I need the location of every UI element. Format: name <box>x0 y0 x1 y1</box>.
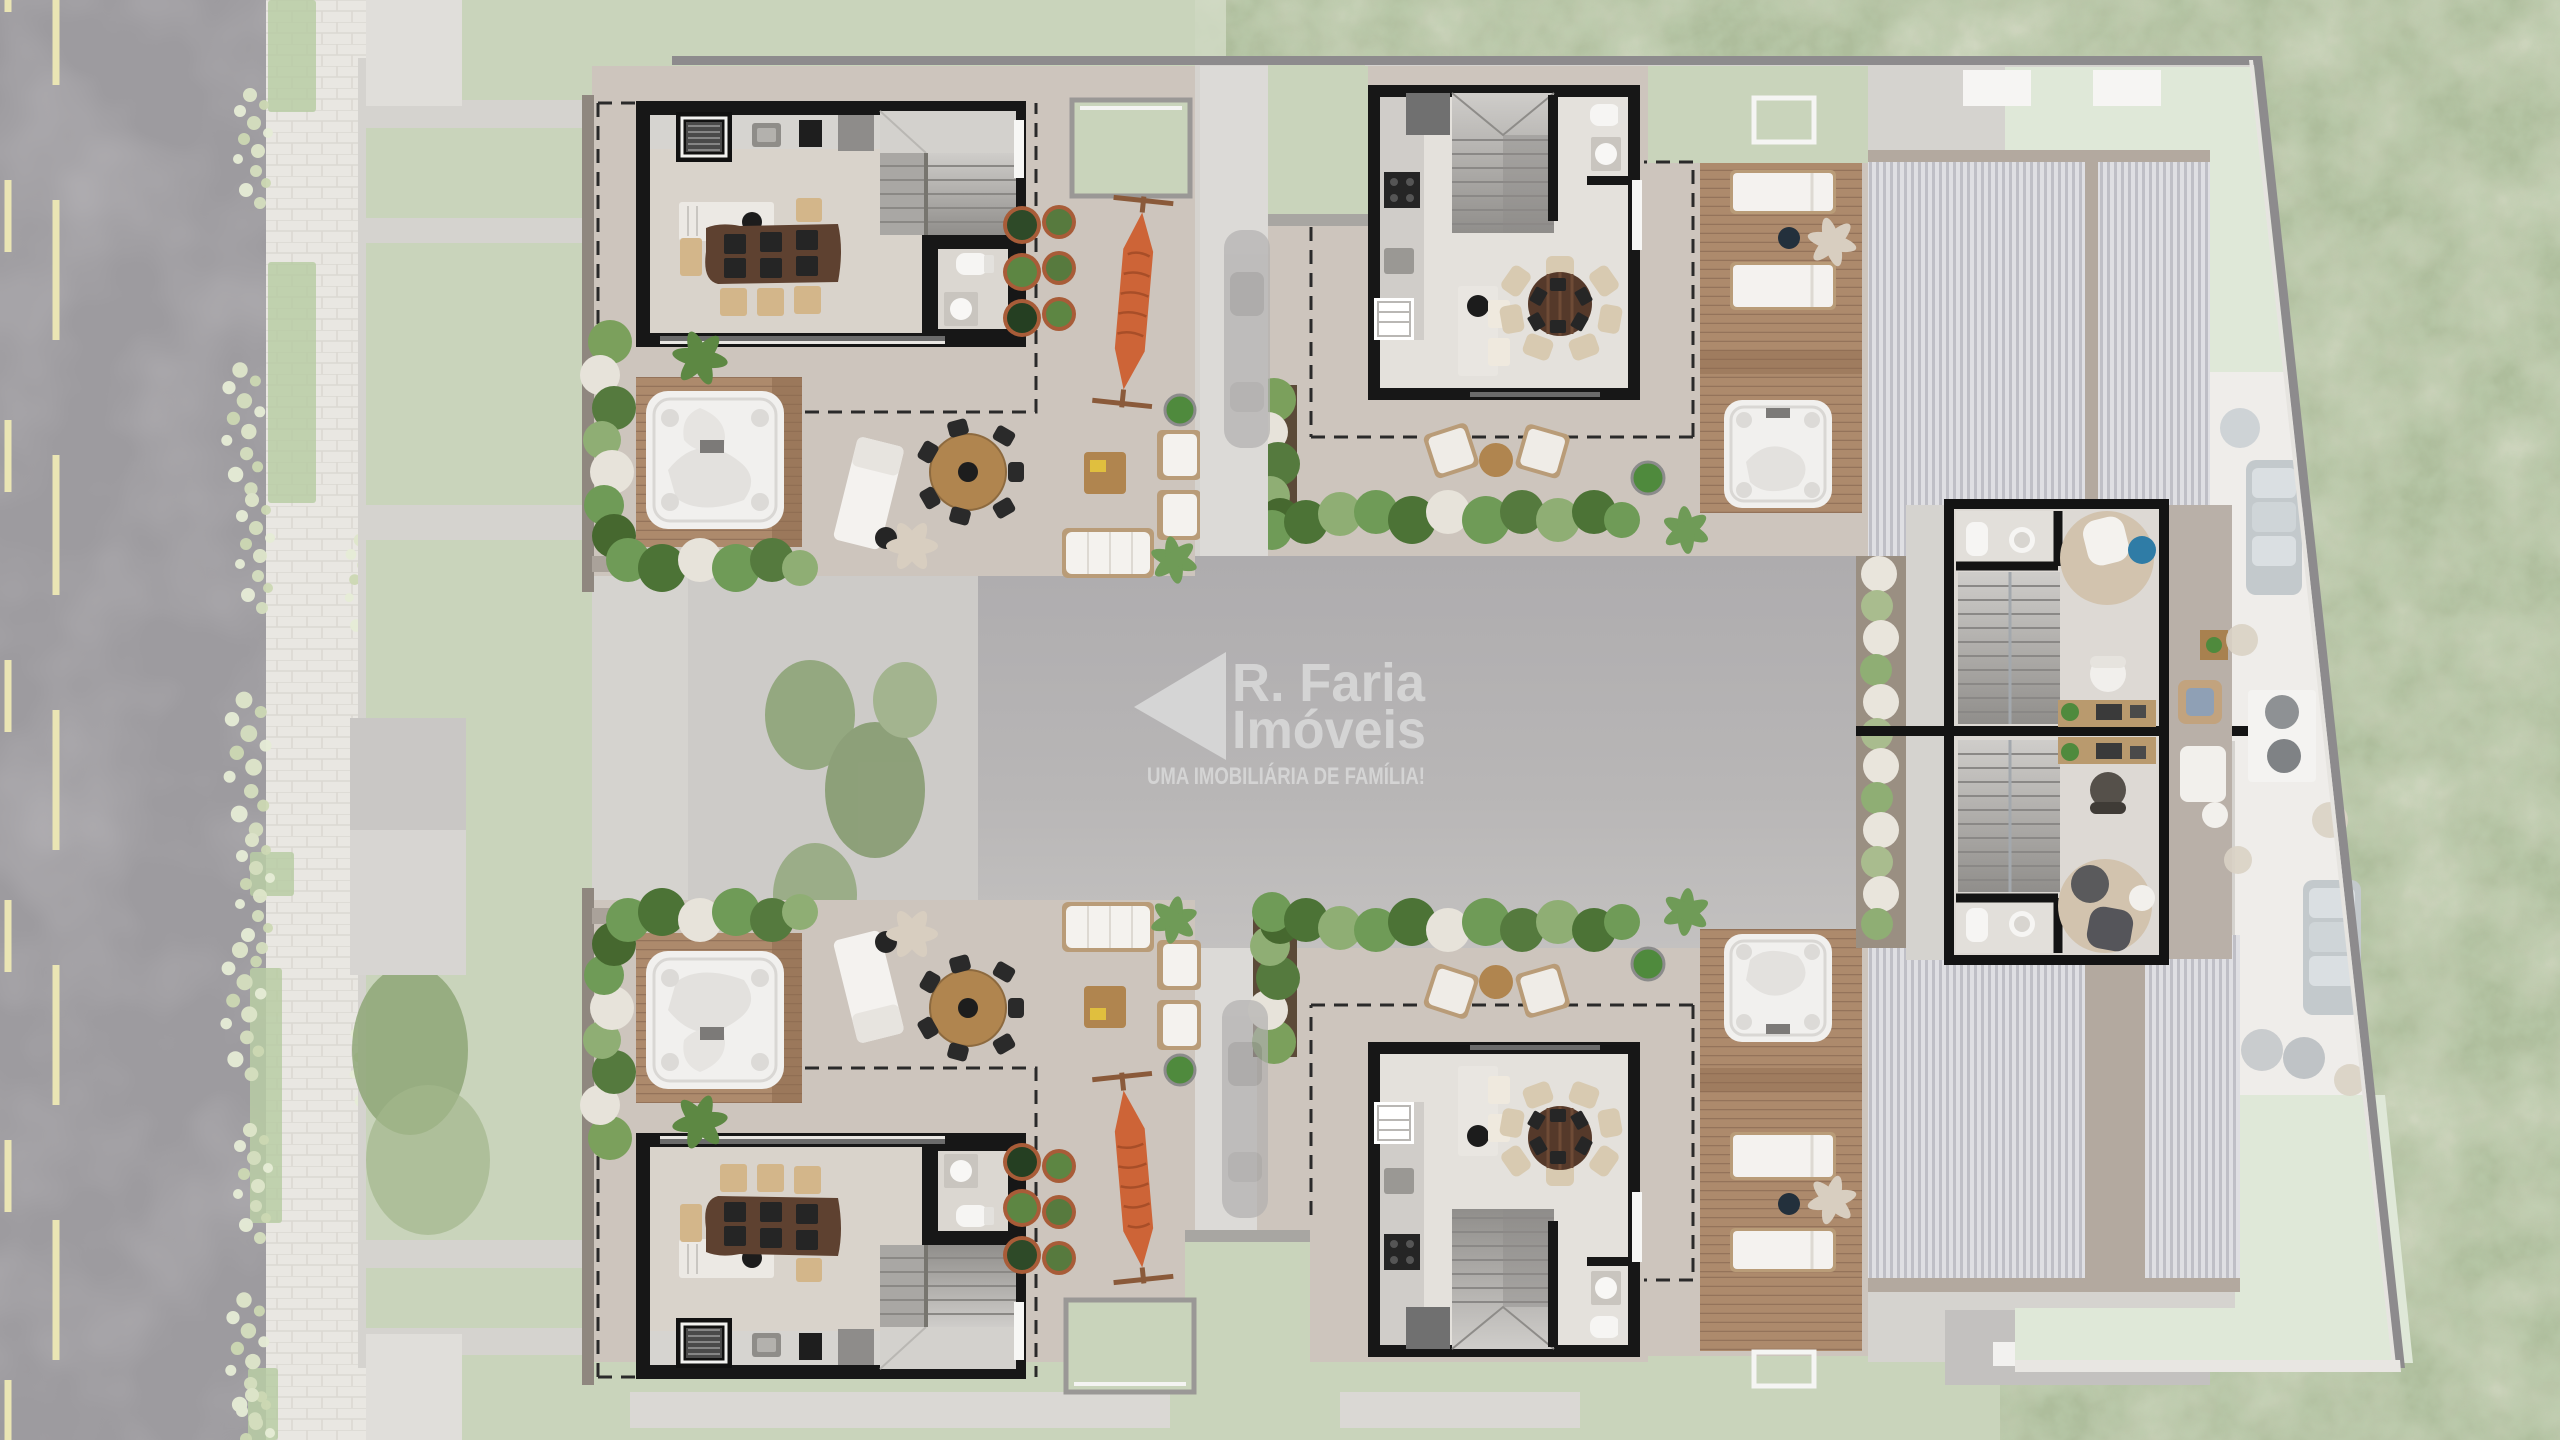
svg-text:UMA IMOBILIÁRIA DE FAMÍLIA!: UMA IMOBILIÁRIA DE FAMÍLIA! <box>1147 762 1425 790</box>
svg-text:Imóveis: Imóveis <box>1232 700 1426 760</box>
